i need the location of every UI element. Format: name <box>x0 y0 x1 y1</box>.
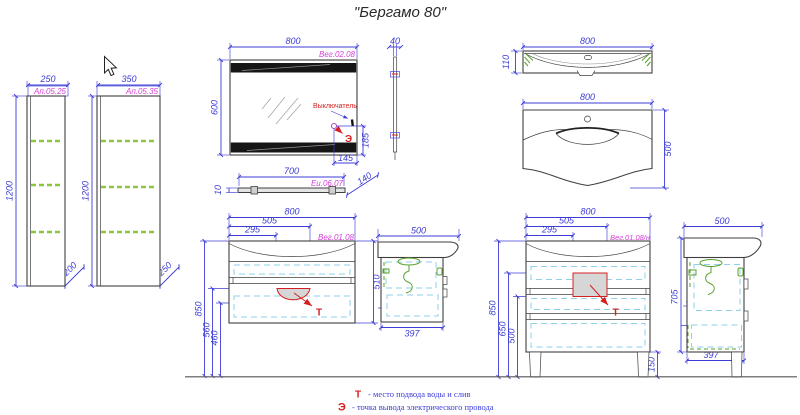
vanity-floor-side-basin <box>684 238 761 258</box>
mirror-width-dim: 800 <box>285 36 300 46</box>
socket-offset-dim: 145 <box>338 153 354 163</box>
legend-electric-text: - точка вывода электрического провода <box>352 402 494 412</box>
vanity-leg <box>732 352 743 377</box>
vanity-leg <box>638 352 650 377</box>
page-title: "Бергамо 80" <box>354 4 447 21</box>
legend-water-symbol: Т <box>355 390 361 401</box>
vanity-wall-505-dim: 505 <box>262 216 278 226</box>
view-mirror-side: 40 <box>389 36 401 160</box>
vanity-wall-460-dim: 460 <box>210 330 220 345</box>
drawer-front-tab <box>744 279 748 289</box>
drawer-front-tab <box>443 277 447 285</box>
column-250-height-dim: 1200 <box>5 181 15 201</box>
vanity-wall-height-dim: 510 <box>372 274 382 289</box>
vanity-wall-850-dim: 850 <box>194 301 204 316</box>
view-column-cabinet-350: 350 1200 250 Ап.05.35 <box>81 74 180 286</box>
shelf-bracket <box>329 187 336 195</box>
basin-top-body <box>523 51 652 73</box>
drawing-canvas: "Бергамо 80" 250 1200 200 Ап.05.25 3 <box>0 0 800 415</box>
vanity-floor-295-dim: 295 <box>541 225 558 235</box>
column-350-code: Ап.05.35 <box>125 87 159 96</box>
drawer-front-tab <box>443 289 447 297</box>
column-350-height-dim: 1200 <box>81 181 91 201</box>
view-vanity-floor-side: 500 705 88 36 397 <box>670 216 763 377</box>
shelf-width-dim: 700 <box>284 166 299 176</box>
vanity-wall-side-basin <box>378 242 458 258</box>
shelf-bracket <box>251 187 258 195</box>
basin-drain-ledge <box>577 71 595 76</box>
view-basin-front: 800 500 <box>523 92 673 188</box>
view-basin-top: 800 110 <box>501 36 652 76</box>
column-350-body <box>97 96 160 286</box>
switch-mark <box>352 120 353 127</box>
electric-symbol-mark: Э <box>345 134 352 145</box>
mouse-cursor-icon <box>105 57 117 76</box>
shelf-thickness-dim: 10 <box>213 185 223 195</box>
legend-electric-symbol: Э <box>338 402 346 414</box>
socket-height-dim: 185 <box>361 132 371 148</box>
view-vanity-wall-side: 500 397 36 <box>378 226 459 339</box>
legend-water-text: - место подвода воды и слив <box>368 389 471 399</box>
vanity-floor-500-dim: 500 <box>507 328 517 343</box>
basin-top-width-dim: 800 <box>580 36 595 46</box>
legend: Т - место подвода воды и слив Э - точка … <box>338 389 494 414</box>
basin-front-body <box>523 110 652 186</box>
vanity-floor-siphon-area <box>573 273 607 297</box>
basin-front-width-dim: 800 <box>580 92 595 102</box>
vanity-floor-505-dim: 505 <box>559 216 575 226</box>
column-250-code: Ап.05.25 <box>33 87 67 96</box>
column-350-width-dim: 350 <box>121 74 136 84</box>
mirror-height-dim: 600 <box>210 100 220 115</box>
vanity-wall-295-dim: 295 <box>244 225 261 235</box>
drawer-front-tab <box>744 311 748 321</box>
vanity-wall-side-depth-dim: 397 <box>404 329 420 339</box>
mirror-code: Вег.02.08 <box>319 50 356 59</box>
basin-top-depth-dim: 110 <box>501 55 511 69</box>
basin-front-height-dim: 500 <box>663 141 673 156</box>
mirror-lamp-top <box>231 63 356 73</box>
vanity-wall-width-dim: 800 <box>284 207 299 217</box>
vanity-floor-850-dim: 850 <box>488 300 498 315</box>
vanity-wall-body <box>229 241 355 323</box>
vanity-floor-side-width-dim: 500 <box>714 216 729 226</box>
vanity-floor-water-symbol: Т <box>613 308 619 319</box>
mirror-depth-dim: 40 <box>390 36 400 46</box>
view-column-cabinet-250: 250 1200 200 Ап.05.25 <box>5 74 85 286</box>
view-mirror-front: 800 600 Вег.02.08 Выключатель Э 145 185 <box>210 36 371 166</box>
vanity-leg <box>530 352 542 377</box>
view-vanity-wall-front: 800 505 295 510 850 560 460 Вег.01.08 Т <box>194 207 382 377</box>
view-vanity-floor-front: 800 505 295 850 650 500 150 Вег.01.08/н … <box>488 207 662 378</box>
column-250-width-dim: 250 <box>39 74 55 84</box>
view-shelf: 700 10 140 Еи.06.07 <box>213 166 378 195</box>
shelf-depth-dim: 140 <box>355 170 373 187</box>
vanity-floor-side-height-dim: 705 <box>670 289 680 305</box>
vanity-floor-width-dim: 800 <box>580 207 595 217</box>
switch-label: Выключатель <box>313 103 357 110</box>
vanity-wall-side-width-dim: 500 <box>411 226 426 236</box>
column-250-body <box>27 96 65 286</box>
shelf-code: Еи.06.07 <box>311 179 344 188</box>
vanity-wall-water-symbol: Т <box>316 308 322 319</box>
technical-drawing-page: "Бергамо 80" 250 1200 200 Ап.05.25 3 <box>0 0 800 415</box>
